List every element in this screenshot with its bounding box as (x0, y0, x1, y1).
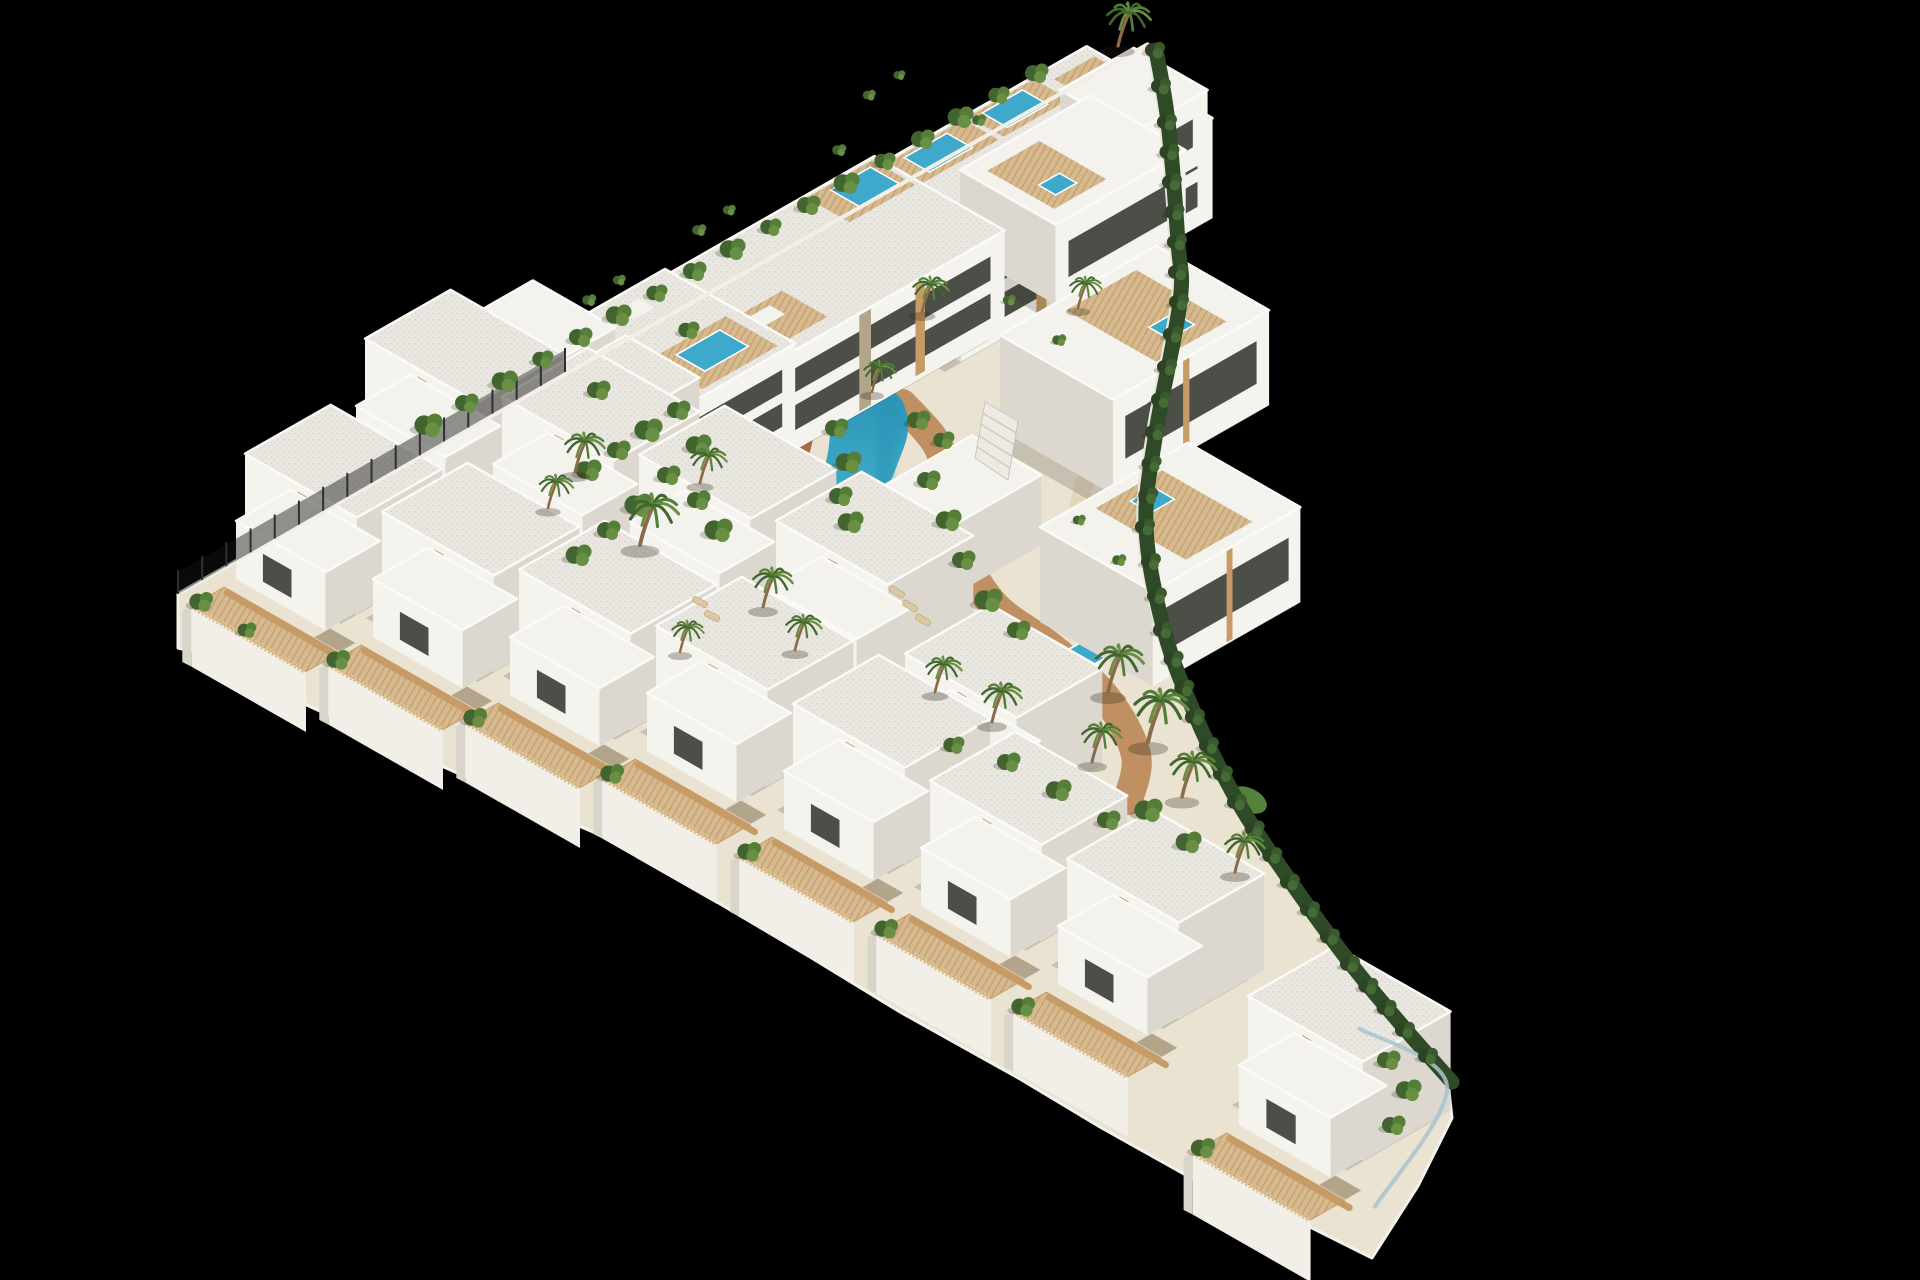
render-canvas (0, 0, 1920, 1280)
architectural-render (0, 0, 1920, 1280)
